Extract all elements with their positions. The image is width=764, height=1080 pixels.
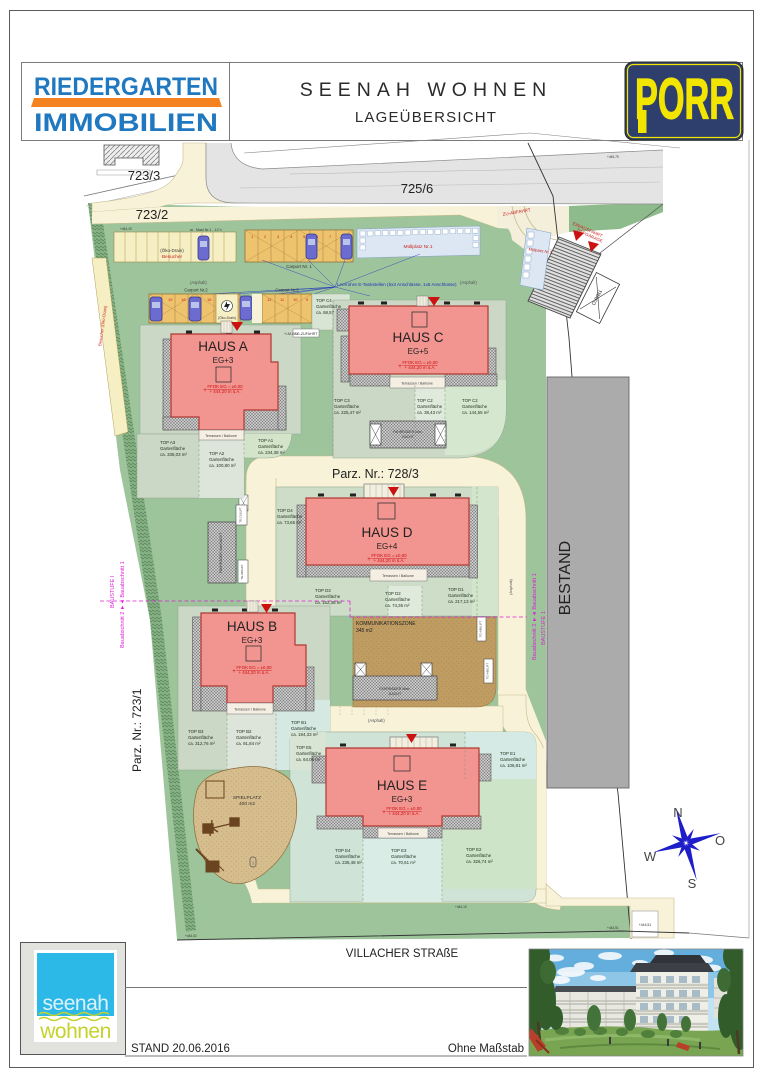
svg-text:STAND 20.06.2016: STAND 20.06.2016 xyxy=(131,1043,230,1055)
svg-text:HAUS E: HAUS E xyxy=(377,778,427,793)
svg-text:FAHRRÄDER über-: FAHRRÄDER über- xyxy=(393,430,423,434)
svg-text:FAHRRÄDER überDACHT: FAHRRÄDER überDACHT xyxy=(219,533,223,573)
svg-text:TG-ABLUFT: TG-ABLUFT xyxy=(240,564,244,580)
svg-text:Terrassen / Balkone: Terrassen / Balkone xyxy=(234,708,266,712)
svg-text:+444,10: +444,10 xyxy=(455,905,467,909)
svg-text:BAUSTUFE I: BAUSTUFE I xyxy=(110,575,116,608)
svg-text:(Öko-Drain): (Öko-Drain) xyxy=(160,247,184,253)
svg-text:Carport Nr. 1: Carport Nr. 1 xyxy=(286,264,312,269)
svg-text:(Asphalt): (Asphalt) xyxy=(508,578,513,595)
svg-text:Parz. Nr.: 728/3: Parz. Nr.: 728/3 xyxy=(332,467,419,481)
svg-text:+: + xyxy=(367,557,371,563)
svg-text:PORR: PORR xyxy=(635,68,734,131)
svg-text:Terrassen / Balkone: Terrassen / Balkone xyxy=(387,832,419,836)
svg-text:Parz. Nr.: 723/1: Parz. Nr.: 723/1 xyxy=(130,688,144,772)
svg-text:TG-ABLUFT: TG-ABLUFT xyxy=(479,621,483,638)
svg-text:+ 444,20 m ü.A.: + 444,20 m ü.A. xyxy=(404,365,435,370)
svg-text:RIEDERGARTEN: RIEDERGARTEN xyxy=(34,73,218,101)
svg-text:TG-ABLUFT: TG-ABLUFT xyxy=(486,663,490,680)
svg-text:HAUS C: HAUS C xyxy=(392,330,443,345)
svg-text:345 m2: 345 m2 xyxy=(356,628,373,634)
svg-text:i: i xyxy=(252,861,253,867)
svg-text:TG-ZULUFT: TG-ZULUFT xyxy=(239,507,243,523)
svg-text:EG+5: EG+5 xyxy=(408,347,429,356)
svg-text:723/2: 723/2 xyxy=(136,207,169,222)
svg-text:SPIELPLATZ: SPIELPLATZ xyxy=(233,795,261,801)
svg-text:DACHT: DACHT xyxy=(389,692,402,696)
svg-text:18: 18 xyxy=(181,297,186,302)
svg-text:+444,51: +444,51 xyxy=(639,923,651,927)
svg-text:+/-M.Gnz: +/-M.Gnz xyxy=(284,332,298,336)
svg-text:723/3: 723/3 xyxy=(128,168,161,183)
svg-text:+445,75: +445,75 xyxy=(607,155,619,159)
svg-text:+ 444,20 m ü.A.: + 444,20 m ü.A. xyxy=(238,670,269,675)
svg-text:(Asphalt): (Asphalt) xyxy=(460,280,477,285)
svg-text:IMMOBILIEN: IMMOBILIEN xyxy=(34,109,218,137)
svg-text:KOMMUNIKATIONSZONE: KOMMUNIKATIONSZONE xyxy=(356,621,416,627)
svg-text:(Öko-Drain): (Öko-Drain) xyxy=(218,316,236,320)
svg-text:Carport Nr.3: Carport Nr.3 xyxy=(275,288,299,293)
svg-text:BESTAND: BESTAND xyxy=(557,541,574,615)
svg-text:+444,19: +444,19 xyxy=(120,227,132,231)
svg-text:VILLACHER STRAßE: VILLACHER STRAßE xyxy=(346,948,459,960)
svg-text:Terrassen / Balkone: Terrassen / Balkone xyxy=(205,434,237,438)
svg-text:Terrassen / Balkone: Terrassen / Balkone xyxy=(401,382,433,386)
svg-text:Ohne Maßstab: Ohne Maßstab xyxy=(448,1043,524,1055)
svg-text:Bauabschnitt 2 ►◄ Bauabschnitt: Bauabschnitt 2 ►◄ Bauabschnitt 1 xyxy=(120,561,126,648)
svg-text:+444,02: +444,02 xyxy=(185,934,197,938)
svg-text:Besucher: Besucher xyxy=(162,254,183,260)
svg-text:N: N xyxy=(673,805,682,820)
svg-text:HAUS A: HAUS A xyxy=(198,339,248,354)
svg-text:O: O xyxy=(715,833,725,848)
svg-text:+: + xyxy=(203,388,207,394)
svg-text:+: + xyxy=(232,669,236,675)
svg-text:(Asphalt): (Asphalt) xyxy=(190,280,207,285)
svg-text:Bauabschnitt 2 ►◄ Bauabschnitt: Bauabschnitt 2 ►◄ Bauabschnitt 1 xyxy=(532,573,538,660)
svg-text:HAUS B: HAUS B xyxy=(227,619,277,634)
svg-text:FAHRRÄDER über-: FAHRRÄDER über- xyxy=(379,687,411,691)
svg-text:S: S xyxy=(688,876,697,891)
svg-text:12: 12 xyxy=(267,297,272,302)
svg-text:(Asphalt): (Asphalt) xyxy=(368,718,385,723)
svg-text:+ 444,20 m ü.A.: + 444,20 m ü.A. xyxy=(388,811,419,816)
svg-text:10: 10 xyxy=(293,297,298,302)
svg-text:EG+3: EG+3 xyxy=(392,795,413,804)
svg-text:TG-ZUFAHRT: TG-ZUFAHRT xyxy=(295,332,318,336)
svg-text:19: 19 xyxy=(168,297,173,302)
svg-text:DACHT: DACHT xyxy=(402,435,414,439)
svg-text:Leerrohre E-Tankstellen (5x3 A: Leerrohre E-Tankstellen (5x3 Anschlüsse,… xyxy=(337,282,457,287)
svg-text:400 m2: 400 m2 xyxy=(239,801,255,807)
svg-text:W: W xyxy=(644,849,657,864)
svg-text:Müllplatz Nr.1: Müllplatz Nr.1 xyxy=(403,244,432,250)
svg-text:+: + xyxy=(382,810,386,816)
svg-text:16: 16 xyxy=(207,297,212,302)
svg-text:+444,51: +444,51 xyxy=(607,926,619,930)
svg-text:EG+4: EG+4 xyxy=(377,542,398,551)
svg-text:SEENAH WOHNEN: SEENAH WOHNEN xyxy=(300,79,552,101)
svg-text:BAUSTUFE 1: BAUSTUFE 1 xyxy=(541,611,547,645)
svg-text:+: + xyxy=(398,364,402,370)
svg-text:+ 444,20 m ü.A.: + 444,20 m ü.A. xyxy=(373,558,404,563)
svg-text:wohnen: wohnen xyxy=(39,1020,111,1043)
svg-text:Terrassen / Balkone: Terrassen / Balkone xyxy=(382,574,414,578)
svg-text:LAGEÜBERSICHT: LAGEÜBERSICHT xyxy=(355,108,497,126)
svg-text:Carport Nr.2: Carport Nr.2 xyxy=(184,288,208,293)
svg-text:seenah: seenah xyxy=(43,992,109,1015)
svg-text:EG+3: EG+3 xyxy=(213,356,234,365)
svg-text:EG+3: EG+3 xyxy=(242,636,263,645)
svg-text:+ 444,20 m ü.A.: + 444,20 m ü.A. xyxy=(209,389,240,394)
svg-text:725/6: 725/6 xyxy=(401,181,434,196)
svg-text:Mast Nr.1 - 12 h: Mast Nr.1 - 12 h xyxy=(196,228,222,232)
svg-text:HAUS D: HAUS D xyxy=(361,525,412,540)
